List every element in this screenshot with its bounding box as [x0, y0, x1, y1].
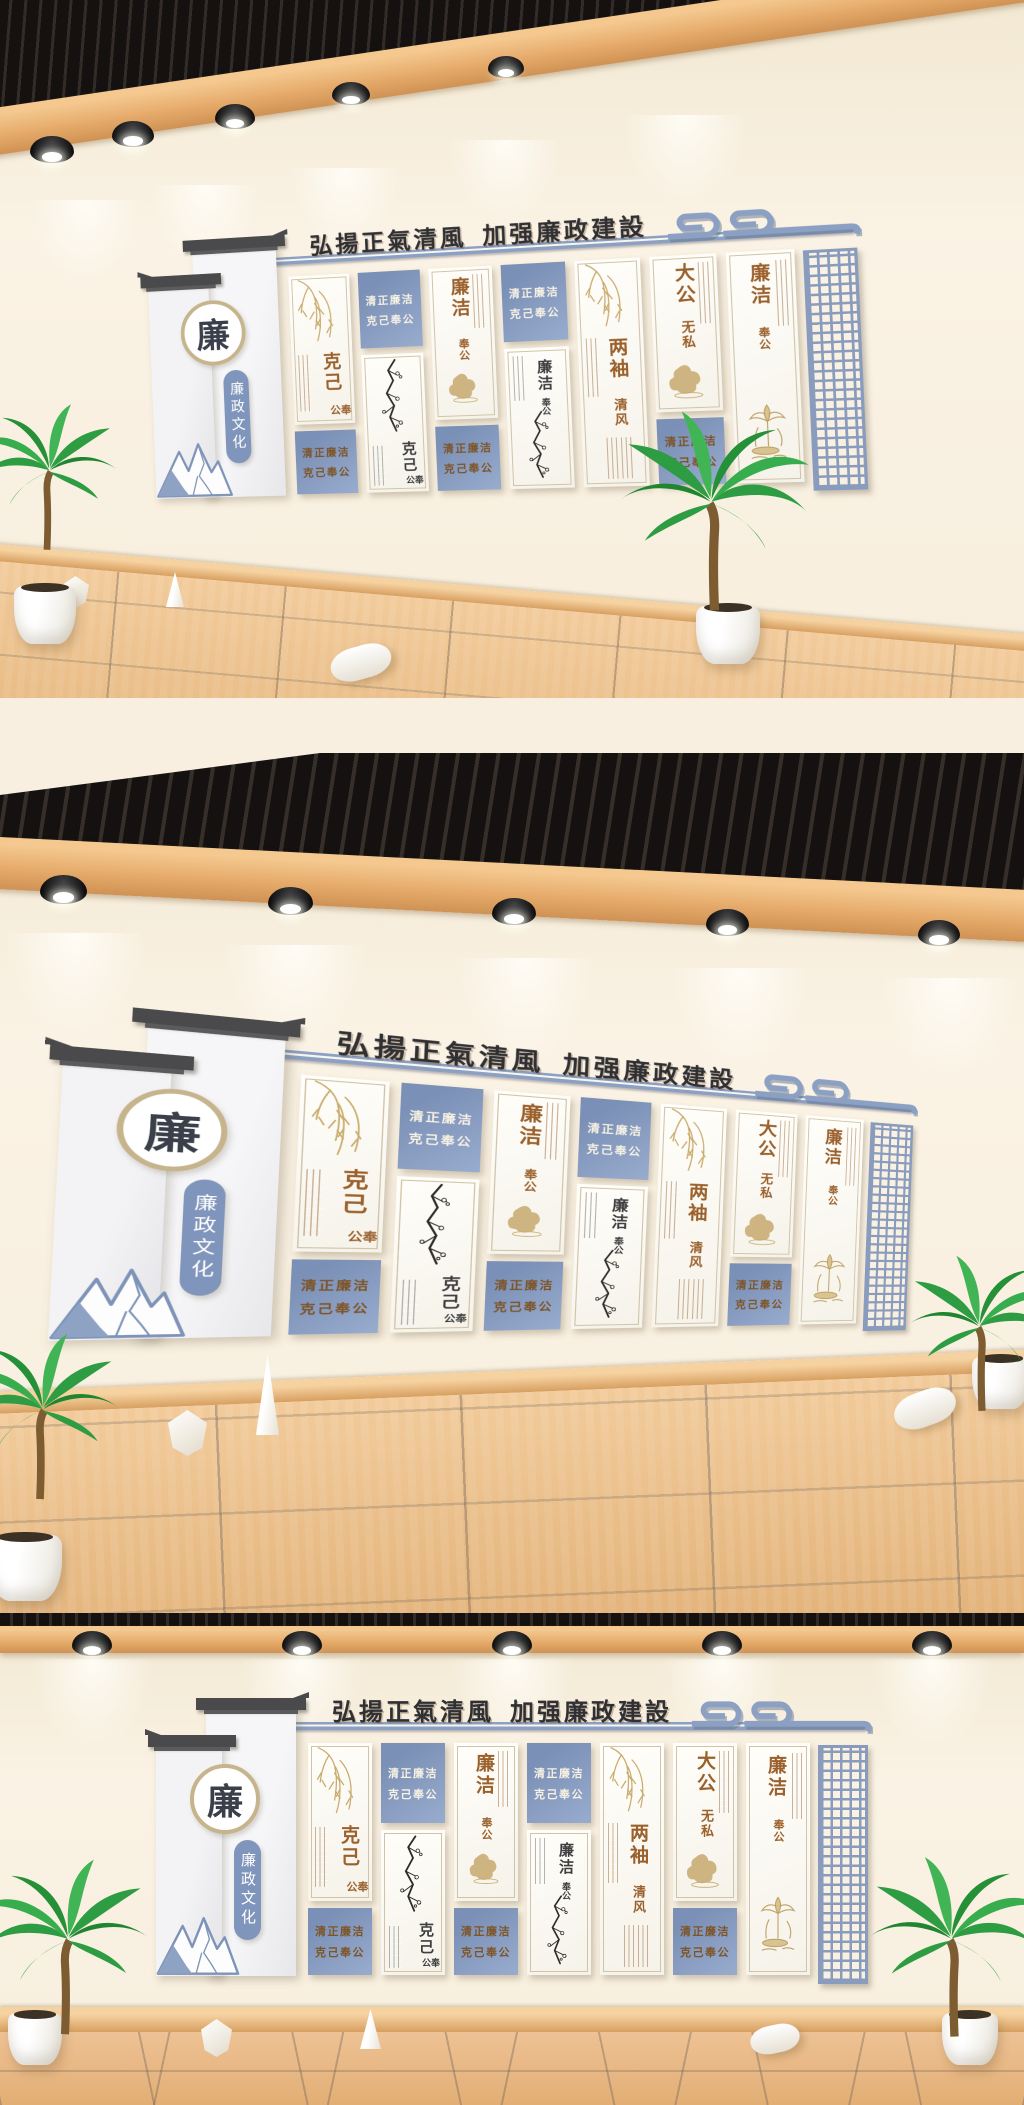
gold-ink-wash-icon	[505, 1194, 550, 1246]
main-title-right: 加强廉政建設	[510, 1692, 672, 1727]
panel-heading: 克己	[321, 351, 341, 393]
panel-subheading: 无私	[680, 320, 695, 350]
cloud-motif-icon	[663, 202, 862, 247]
cloud-motif-icon	[688, 1700, 873, 1734]
panel-subheading: 清风	[632, 1885, 645, 1915]
slogan-line: 清正廉洁	[534, 1765, 584, 1781]
micro-text-block	[544, 1102, 562, 1159]
blue-slogan-panel: 清正廉洁 克己奉公	[577, 1097, 651, 1180]
micro-text-block	[845, 1127, 858, 1186]
panel-subheading: 奉公	[405, 475, 423, 492]
slogan-line: 克己奉公	[408, 1129, 473, 1150]
wall-column-5: 两袖 清风	[652, 1060, 729, 1330]
white-panel: 廉洁 奉公	[798, 1115, 864, 1324]
panel-heading: 大公	[756, 1119, 776, 1161]
blue-slogan-panel: 清正廉洁 克己奉公	[398, 1083, 484, 1173]
banner-roof-cap-right	[183, 235, 286, 252]
spotlight-icon	[268, 887, 313, 915]
white-panel: 大公 无私	[730, 1110, 798, 1258]
micro-text-block	[373, 446, 387, 486]
slogan-line: 克己奉公	[586, 1140, 642, 1159]
micro-text-block	[298, 355, 313, 412]
spotlight-icon	[282, 1631, 322, 1656]
panel-heading: 廉洁	[748, 262, 770, 307]
slogan-line: 克己奉公	[315, 1944, 365, 1960]
slogan-line: 清正廉洁	[302, 444, 350, 461]
lian-emblem: 廉	[190, 1764, 260, 1834]
blue-slogan-panel: 清正廉洁 克己奉公	[288, 1259, 381, 1334]
slogan-line: 克己奉公	[299, 1299, 370, 1317]
blue-mountain-icon	[153, 439, 234, 499]
slogan-line: 克己奉公	[735, 1297, 784, 1312]
banner-pill-label: 廉政文化	[179, 1179, 227, 1296]
banner-roof-cap-right	[196, 1698, 306, 1710]
white-panel: 克己 奉公	[381, 1830, 445, 1975]
panel-heading: 廉洁	[822, 1127, 841, 1167]
spotlight-icon	[112, 121, 154, 147]
gold-ink-wash-icon	[742, 1205, 783, 1252]
spotlight-icon	[912, 1631, 952, 1656]
micro-text-block	[778, 1120, 792, 1177]
slogan-line: 克己奉公	[388, 1786, 438, 1802]
wall-column-3: 廉洁 奉公 清正廉洁 克己奉公	[483, 1044, 572, 1334]
ceiling	[0, 1613, 1024, 1626]
slogan-line: 克己奉公	[509, 303, 560, 321]
panel-subheading: 奉公	[329, 404, 351, 424]
blue-slogan-panel: 清正廉洁 克己奉公	[435, 425, 501, 491]
slogan-line: 清正廉洁	[680, 1923, 730, 1939]
wall-column-1: 克己 奉公 清正廉洁 克己奉公	[286, 231, 358, 497]
banner-roof-cap-left	[140, 273, 221, 289]
blue-slogan-panel: 清正廉洁 克己奉公	[673, 1908, 737, 1975]
panel-heading: 克己	[339, 1825, 358, 1869]
white-panel: 大公 无私	[673, 1743, 737, 1901]
panel-subheading: 奉公	[757, 326, 770, 350]
micro-text-block	[664, 1181, 680, 1239]
panel-subheading: 无私	[700, 1809, 713, 1839]
slogan-line: 清正廉洁	[443, 439, 493, 456]
palm-plant-icon	[0, 1825, 155, 2040]
micro-text-block	[775, 259, 791, 326]
wall-column-3: 廉洁 奉公 清正廉洁 克己奉公	[454, 1698, 518, 1978]
panel-subheading: 奉公	[457, 338, 469, 362]
white-panel: 廉洁 奉公	[428, 266, 498, 421]
white-panel: 廉洁 奉公	[746, 1743, 810, 1975]
panel-heading: 廉洁	[609, 1197, 627, 1231]
panel-heading: 廉洁	[448, 277, 469, 320]
slogan-line: 克己奉公	[444, 460, 494, 477]
willow-branch-icon	[292, 276, 348, 346]
willow-branch-icon	[604, 1746, 660, 1816]
wall-column-7: 廉洁 奉公	[798, 1075, 866, 1327]
plum-blossom-ink-icon	[533, 1894, 585, 1970]
slogan-line: 清正廉洁	[461, 1923, 511, 1939]
slogan-line: 克己奉公	[534, 1786, 584, 1802]
white-panel: 廉洁 奉公	[504, 346, 575, 489]
white-panel: 克己 奉公	[308, 1743, 372, 1901]
white-panel: 两袖 清风	[652, 1104, 727, 1328]
banner-roof-cap-left	[148, 1735, 236, 1747]
plum-blossom-ink-icon	[578, 1248, 639, 1324]
micro-text-block	[401, 1280, 420, 1325]
blue-slogan-panel: 清正廉洁 克己奉公	[295, 429, 359, 494]
slogan-line: 清正廉洁	[587, 1119, 643, 1138]
wall-column-6: 大公 无私 清正廉洁 克己奉公	[673, 1698, 737, 1978]
micro-text-block	[586, 338, 602, 397]
micro-text-block	[498, 1751, 511, 1807]
gold-lotus-icon	[756, 1869, 800, 1967]
panel-heading: 克己	[338, 1168, 366, 1217]
wall-column-5: 两袖 清风	[600, 1698, 664, 1978]
micro-text-block	[677, 1279, 706, 1319]
white-panel: 克己 奉公	[361, 353, 429, 493]
white-panel: 克己 奉公	[390, 1176, 480, 1333]
white-panel: 廉洁 奉公	[527, 1830, 591, 1975]
spotlight-icon	[492, 898, 536, 925]
blue-slogan-panel: 清正廉洁 克己奉公	[484, 1261, 564, 1331]
banner-pill-label: 廉政文化	[234, 1840, 261, 1940]
blue-slogan-panel: 清正廉洁 克己奉公	[527, 1743, 591, 1823]
floor	[0, 2032, 1024, 2105]
slogan-line: 清正廉洁	[508, 283, 559, 301]
wall-column-6: 大公 无私 清正廉洁 克己奉公	[727, 1068, 799, 1329]
lattice-screen-icon	[818, 1745, 868, 1984]
wall-column-4: 清正廉洁 克己奉公 廉洁 奉公	[571, 1052, 654, 1332]
panel-subheading: 奉公	[826, 1185, 837, 1207]
slogan-line: 克己奉公	[461, 1944, 511, 1960]
micro-text-block	[303, 1169, 325, 1236]
slogan-line: 清正廉洁	[494, 1277, 555, 1294]
panel-subheading: 清风	[688, 1241, 703, 1270]
white-panel: 两袖 清风	[600, 1743, 664, 1975]
panel-subheading: 奉公	[345, 1881, 367, 1901]
slogan-line: 克己奉公	[303, 464, 351, 480]
plum-blossom-ink-icon	[395, 1181, 476, 1272]
wall-column-2: 清正廉洁 克己奉公 克己 奉公	[381, 1698, 445, 1978]
scene-view-1: 弘揚正氣清風 加强廉政建設 廉 廉政文化 克己 奉公 清正廉洁 克己奉公	[0, 0, 1024, 698]
panel-heading: 两袖	[686, 1182, 707, 1224]
slogan-line: 清正廉洁	[315, 1923, 365, 1939]
spotlight-icon	[215, 104, 255, 129]
culture-wall: 弘揚正氣清風 加强廉政建設 廉 廉政文化 克己 奉公 清正廉洁 克己奉公	[38, 1000, 917, 1344]
palm-plant-icon	[612, 372, 817, 617]
blue-slogan-panel: 清正廉洁 克己奉公	[308, 1908, 372, 1975]
panel-heading: 廉洁	[516, 1102, 541, 1148]
micro-text-block	[472, 274, 487, 329]
panel-heading: 大公	[672, 262, 694, 307]
panel-heading: 克己	[438, 1276, 459, 1312]
spotlight-icon	[72, 1631, 112, 1656]
wall-column-7: 廉洁 奉公	[746, 1698, 810, 1978]
white-panel: 克己 奉公	[288, 273, 355, 425]
plum-blossom-ink-icon	[383, 1834, 443, 1918]
willow-branch-icon	[662, 1107, 723, 1177]
wall-column-4: 清正廉洁 克己奉公 廉洁 奉公	[499, 218, 575, 492]
willow-branch-icon	[578, 261, 639, 332]
wall-column-1: 克己 奉公 清正廉洁 克己奉公	[308, 1698, 372, 1978]
banner-pill-label: 廉政文化	[223, 370, 252, 464]
blue-slogan-panel: 清正廉洁 克己奉公	[501, 262, 569, 343]
gold-ink-wash-icon	[446, 363, 484, 412]
panel-subheading: 奉公	[442, 1313, 466, 1331]
micro-text-block	[608, 1823, 621, 1883]
micro-text-block	[535, 1838, 548, 1884]
slogan-line: 清正廉洁	[736, 1277, 785, 1292]
blue-mountain-icon	[154, 1914, 240, 1976]
panel-heading: 克己	[400, 441, 416, 474]
panel-heading: 两袖	[628, 1823, 647, 1867]
spotlight-icon	[488, 56, 524, 78]
panel-heading: 廉洁	[474, 1753, 493, 1797]
palm-plant-icon	[0, 330, 122, 600]
emblem-character: 廉	[143, 1098, 203, 1162]
panel-subheading: 无私	[759, 1172, 773, 1200]
slogan-line: 克己奉公	[493, 1298, 554, 1315]
gold-ink-wash-icon	[685, 1845, 725, 1895]
willow-branch-icon	[303, 1078, 384, 1162]
scene-view-2: 弘揚正氣清風 加强廉政建設 廉 廉政文化 克己 奉公 清正廉洁 克己奉公	[0, 753, 1024, 1613]
plum-blossom-ink-icon	[363, 356, 425, 438]
micro-text-block	[624, 1925, 650, 1967]
micro-text-block	[719, 1751, 731, 1813]
micro-text-block	[698, 262, 713, 324]
spotlight-icon	[30, 136, 74, 163]
panel-subheading: 奉公	[772, 1819, 783, 1843]
blue-slogan-panel: 清正廉洁 克己奉公	[727, 1263, 792, 1326]
white-panel: 廉洁 奉公	[487, 1090, 570, 1255]
palm-plant-icon	[862, 1823, 1024, 2041]
slogan-line: 清正廉洁	[388, 1765, 438, 1781]
emblem-character: 廉	[195, 308, 230, 358]
spotlight-icon	[706, 909, 749, 936]
blue-slogan-panel: 清正廉洁 克己奉公	[358, 270, 423, 349]
emblem-character: 廉	[207, 1773, 243, 1825]
plum-blossom-ink-icon	[513, 409, 569, 484]
gold-lotus-icon	[807, 1229, 850, 1317]
wall-column-1: 克己 奉公 清正廉洁 克己奉公	[288, 1024, 392, 1338]
wall-column-4: 清正廉洁 克己奉公 廉洁 奉公	[527, 1698, 591, 1978]
spotlight-icon	[702, 1631, 742, 1656]
micro-text-block	[315, 1827, 328, 1887]
panel-heading: 克己	[417, 1922, 432, 1956]
slogan-line: 克己奉公	[366, 310, 415, 328]
gold-ink-wash-icon	[468, 1843, 504, 1893]
panel-subheading: 奉公	[345, 1230, 376, 1252]
panel-subheading: 奉公	[522, 1168, 536, 1193]
culture-wall: 弘揚正氣清風 加强廉政建設 廉 廉政文化 克己 奉公 清正廉洁 克己奉公	[150, 1698, 870, 1978]
slogan-line: 清正廉洁	[365, 290, 414, 308]
micro-text-block	[584, 1192, 601, 1238]
slogan-line: 清正廉洁	[300, 1276, 371, 1294]
panel-heading: 大公	[695, 1751, 714, 1795]
spotlight-icon	[332, 82, 370, 105]
panel-heading: 廉洁	[535, 359, 552, 393]
panel-heading: 廉洁	[766, 1755, 785, 1799]
panel-subheading: 奉公	[421, 1958, 439, 1975]
slogan-line: 克己奉公	[680, 1944, 730, 1960]
white-panel: 廉洁 奉公	[454, 1743, 518, 1901]
micro-text-block	[389, 1926, 402, 1968]
wall-column-3: 廉洁 奉公 清正廉洁 克己奉公	[427, 222, 502, 494]
wall-column-2: 清正廉洁 克己奉公 克己 奉公	[390, 1034, 486, 1335]
slogan-line: 清正廉洁	[409, 1106, 474, 1127]
spotlight-icon	[918, 920, 960, 946]
panel-subheading: 奉公	[480, 1817, 491, 1841]
palm-plant-icon	[902, 1208, 1024, 1433]
white-panel: 克己 奉公	[292, 1075, 389, 1253]
main-title-left: 弘揚正氣清風	[332, 1692, 494, 1727]
spotlight-icon	[492, 1631, 532, 1656]
palm-plant-icon	[0, 1253, 125, 1553]
scene-view-3: 弘揚正氣清風 加强廉政建設 廉 廉政文化 克己 奉公 清正廉洁 克己奉公	[0, 1613, 1024, 2105]
micro-text-block	[513, 356, 528, 401]
wall-column-2: 清正廉洁 克己奉公 克己 奉公	[356, 227, 429, 496]
blue-slogan-panel: 清正廉洁 克己奉公	[381, 1743, 445, 1823]
white-panel: 廉洁 奉公	[571, 1184, 648, 1329]
micro-text-block	[792, 1753, 804, 1819]
panel-heading: 廉洁	[557, 1842, 572, 1876]
blue-slogan-panel: 清正廉洁 克己奉公	[454, 1908, 518, 1975]
willow-branch-icon	[312, 1746, 368, 1818]
spotlight-icon	[40, 875, 87, 904]
